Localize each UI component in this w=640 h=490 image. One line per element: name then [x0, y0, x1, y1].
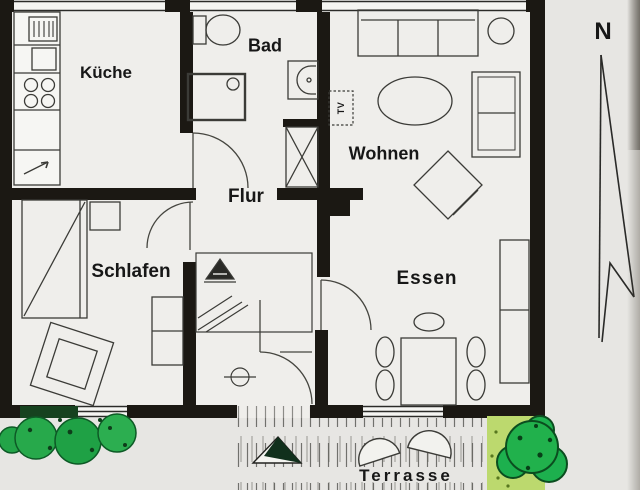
floor-plan-image: Küche Bad Wohnen Flur Schlafen Essen Ter…	[0, 0, 640, 490]
kitchen-fixtures	[14, 12, 60, 185]
tv-label: TV	[336, 102, 346, 115]
window-dining	[363, 405, 443, 418]
shrub-icon	[487, 416, 567, 490]
room-label-hall: Flur	[228, 186, 264, 208]
wall-bath-bottom	[277, 188, 363, 200]
shrub-icon	[0, 406, 136, 464]
wall-bath-living	[317, 0, 330, 188]
wall-right	[530, 0, 545, 418]
room-label-bedroom: Schlafen	[91, 261, 170, 283]
wall-left	[0, 0, 12, 418]
room-label-bath: Bad	[248, 36, 282, 57]
room-label-dining: Essen	[397, 268, 458, 290]
wall-hall-living	[317, 200, 330, 277]
room-label-terrace: Terrasse	[359, 466, 453, 486]
wall-vestibule-dining	[315, 330, 328, 405]
room-label-living: Wohnen	[349, 144, 420, 165]
room-label-kitchen: Küche	[80, 63, 132, 83]
compass-north-label: N	[594, 18, 611, 46]
wall-kitchen-bath	[180, 0, 193, 133]
wall-bedroom-hall	[183, 262, 196, 410]
north-arrow-icon	[599, 55, 634, 342]
wall-kitchen-bedroom	[0, 188, 196, 200]
